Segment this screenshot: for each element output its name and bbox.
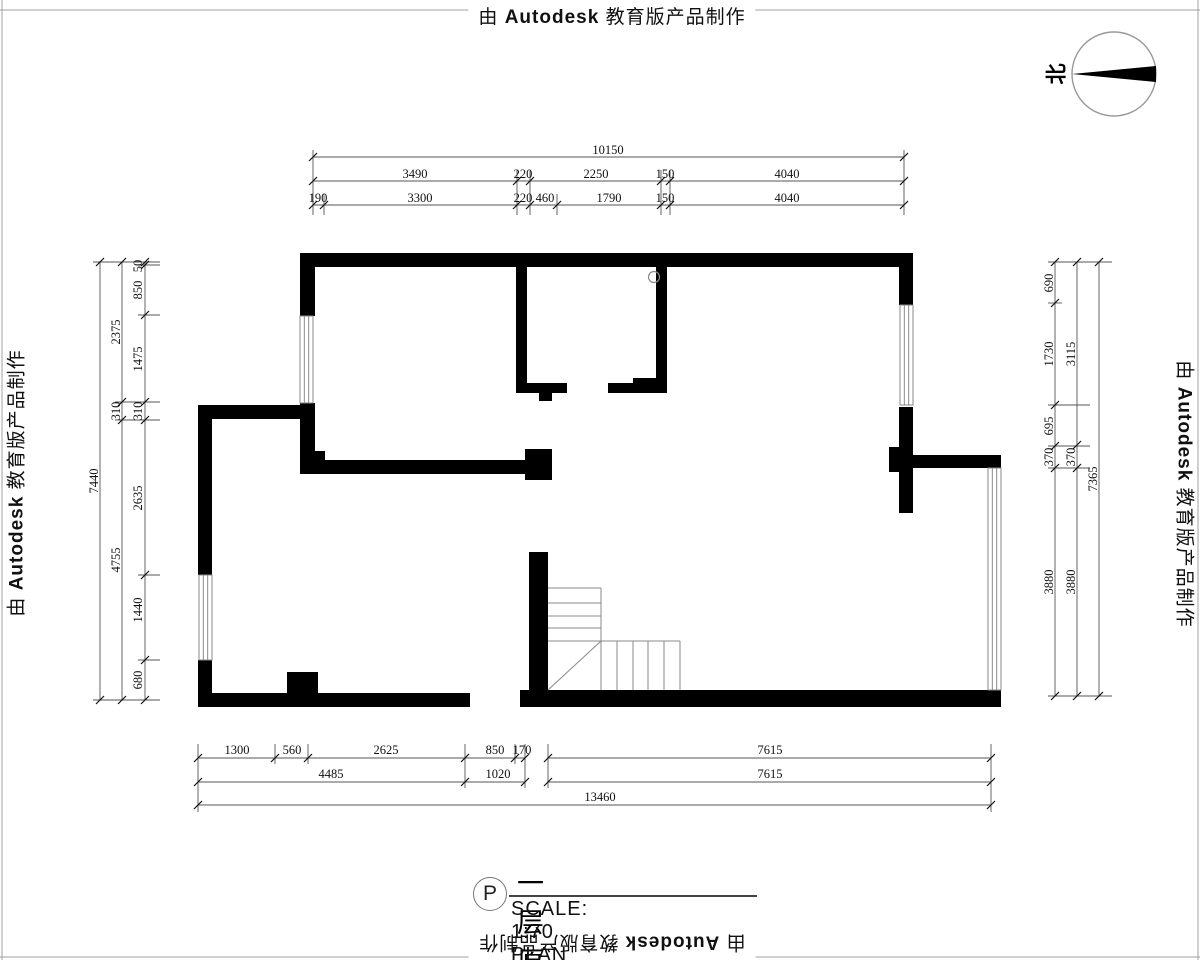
dimension-label: 690 bbox=[1042, 274, 1056, 293]
wall-segment bbox=[539, 393, 552, 401]
wall-segment bbox=[520, 690, 1001, 707]
floor-plan-sheet: 1015034902202250150404019033002204601790… bbox=[0, 0, 1200, 960]
window bbox=[988, 468, 1001, 690]
wall-segment bbox=[529, 552, 548, 693]
dimension-label: 3115 bbox=[1064, 342, 1078, 367]
dimension-label: 220 bbox=[514, 191, 533, 205]
wall-segment bbox=[287, 672, 318, 693]
dimension-label: 7440 bbox=[87, 469, 101, 494]
stair-line bbox=[548, 641, 601, 690]
dimension-label: 310 bbox=[109, 402, 123, 421]
wall-segment bbox=[899, 472, 913, 513]
dimension-label: 150 bbox=[656, 167, 675, 181]
wall-segment bbox=[300, 267, 315, 316]
window bbox=[199, 575, 212, 660]
dimension-label: 1300 bbox=[225, 743, 250, 757]
dimension-label: 2625 bbox=[374, 743, 399, 757]
dimension-label: 2635 bbox=[131, 486, 145, 511]
dimension-label: 4040 bbox=[775, 191, 800, 205]
floor-plan-drawing: 1015034902202250150404019033002204601790… bbox=[0, 0, 1200, 960]
plan-mark: P bbox=[483, 882, 497, 906]
dimension-label: 680 bbox=[131, 671, 145, 690]
wall-segment bbox=[525, 449, 552, 480]
wall-segment bbox=[527, 383, 567, 393]
dimension-label: 1020 bbox=[486, 767, 511, 781]
border-text-left: 由 Autodesk 教育版产品制作 bbox=[2, 349, 29, 616]
wall-segment bbox=[300, 253, 913, 267]
north-label: 北 bbox=[1046, 64, 1069, 85]
dimension-label: 1475 bbox=[131, 347, 145, 372]
wall-segment bbox=[608, 383, 667, 393]
north-needle-icon bbox=[1072, 66, 1156, 82]
dimension-label: 560 bbox=[283, 743, 302, 757]
dimension-label: 4755 bbox=[109, 548, 123, 573]
dimension-label: 13460 bbox=[584, 790, 615, 804]
dimension-label: 150 bbox=[656, 191, 675, 205]
wall-segment bbox=[198, 419, 212, 575]
window bbox=[900, 305, 913, 405]
dimension-label: 3490 bbox=[403, 167, 428, 181]
dimension-label: 7365 bbox=[1086, 467, 1100, 492]
plan-mark-circle: P bbox=[473, 877, 507, 911]
dimension-label: 7615 bbox=[758, 767, 783, 781]
dimension-label: 310 bbox=[131, 402, 145, 421]
wall-segment bbox=[516, 267, 527, 393]
dimension-label: 7615 bbox=[758, 743, 783, 757]
dimension-label: 1790 bbox=[597, 191, 622, 205]
wall-segment bbox=[315, 451, 325, 460]
dimension-label: 3880 bbox=[1042, 570, 1056, 595]
dimension-label: 50 bbox=[131, 260, 145, 273]
dimension-label: 850 bbox=[131, 281, 145, 300]
dimension-label: 3300 bbox=[408, 191, 433, 205]
dimension-label: 370 bbox=[1042, 448, 1056, 467]
dimension-label: 460 bbox=[536, 191, 555, 205]
wall-segment bbox=[198, 693, 470, 707]
dimension-label: 695 bbox=[1042, 417, 1056, 436]
dimension-label: 220 bbox=[514, 167, 533, 181]
dimension-label: 3880 bbox=[1064, 570, 1078, 595]
border-text-top: 由 Autodesk 教育版产品制作 bbox=[468, 2, 755, 29]
border-text-right: 由 Autodesk 教育版产品制作 bbox=[1173, 360, 1200, 627]
wall-segment bbox=[300, 460, 527, 474]
dimension-label: 4040 bbox=[775, 167, 800, 181]
dimension-label: 1440 bbox=[131, 598, 145, 623]
wall-segment bbox=[633, 378, 667, 383]
dimension-label: 10150 bbox=[592, 143, 623, 157]
wall-segment bbox=[899, 407, 913, 447]
wall-segment bbox=[899, 267, 913, 305]
wall-segment bbox=[656, 267, 667, 378]
scale-label: SCALE: 1:70 PLAN bbox=[511, 898, 588, 960]
dimension-label: 1730 bbox=[1042, 342, 1056, 367]
dimension-label: 370 bbox=[1064, 448, 1078, 467]
wall-segment bbox=[889, 447, 913, 472]
dimension-label: 850 bbox=[486, 743, 505, 757]
dimension-label: 4485 bbox=[319, 767, 344, 781]
dimension-label: 170 bbox=[513, 743, 532, 757]
title-underline bbox=[509, 895, 757, 897]
wall-segment bbox=[913, 455, 1001, 468]
dimension-label: 2250 bbox=[584, 167, 609, 181]
dimension-label: 190 bbox=[309, 191, 328, 205]
dimension-label: 2375 bbox=[109, 320, 123, 345]
wall-segment bbox=[198, 405, 300, 419]
window bbox=[300, 316, 313, 403]
